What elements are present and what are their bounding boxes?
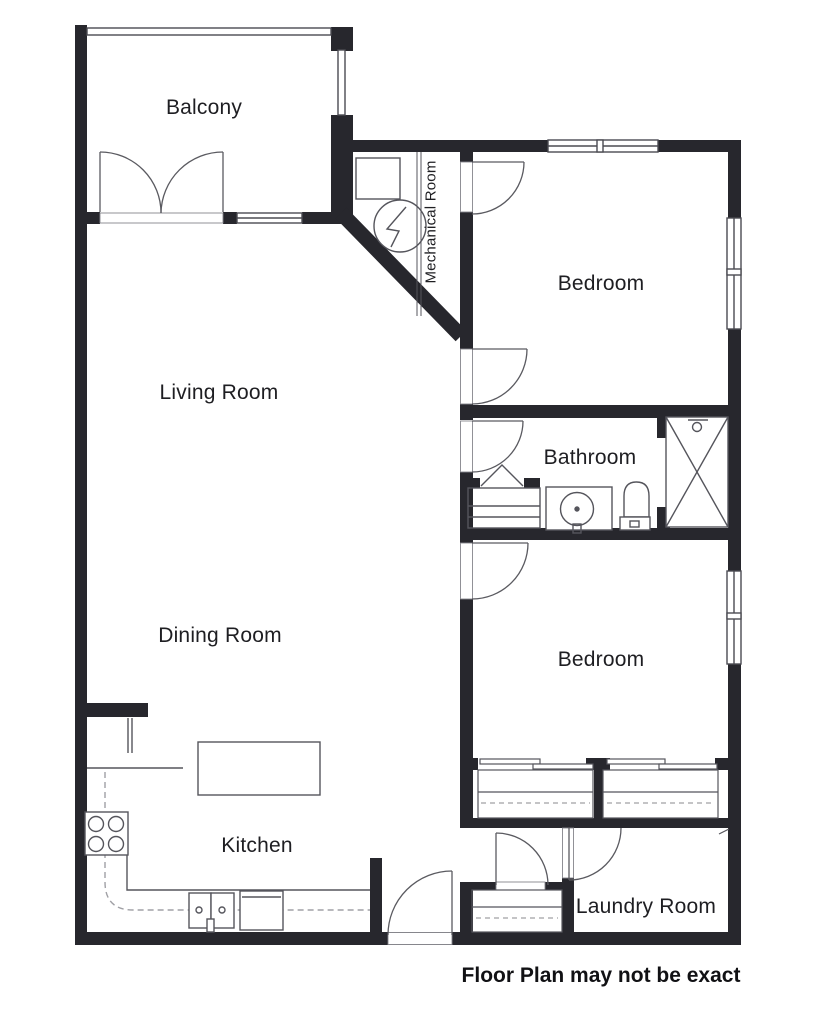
room-label-living-room: Living Room [160,381,279,405]
wall-segment [460,152,473,162]
wall-segment [75,703,148,717]
wall-segment [524,478,540,488]
french-doors-icon [100,152,223,213]
corner-tick [719,829,729,834]
coat-closet [472,890,562,932]
door-swing-icon [388,871,452,935]
wall-segment [545,882,574,890]
water-heater-icon [356,158,400,199]
wall-segment [331,27,353,51]
room-label-bedroom-1: Bedroom [558,272,645,296]
wall-segment [460,212,473,349]
dishwasher-icon [240,891,283,930]
wall-segment [460,404,473,420]
wall-segment [460,818,740,828]
stove-icon [85,812,128,855]
kitchen-sink-icon [189,893,234,932]
wall-segment [658,140,741,152]
counter-edge [127,855,370,890]
door-swing-icon [472,349,527,404]
kitchen-fixtures [85,718,370,932]
room-label-dining-room: Dining Room [158,624,282,648]
wall-segment [460,882,496,890]
wall-segment [75,212,100,224]
wall-segment [472,405,740,418]
door-swing-icon [472,421,523,472]
bifold-door-icon [481,465,523,486]
wall-segment [353,140,548,152]
wall-segment [594,770,603,818]
shower-icon [666,417,728,527]
linen-closet [468,465,540,528]
window-icon [727,218,741,329]
room-label-bathroom: Bathroom [544,446,637,470]
wall-segment [370,858,382,934]
wall-segment [460,758,478,770]
window-icon [727,571,741,664]
room-label-kitchen: Kitchen [221,834,292,858]
wall-segment [223,212,237,224]
kitchen-island [198,742,320,795]
wall-segment [715,758,741,770]
wall-segment [331,115,353,216]
room-label-bedroom-2: Bedroom [558,648,645,672]
toilet-icon [620,482,650,530]
door-swing-icon [496,833,548,885]
room-label-laundry-room: Laundry Room [576,895,716,919]
door-swing-icon [569,828,621,880]
wall-segment [75,25,87,945]
window-icon [548,140,658,152]
window-icon [237,213,302,223]
vanity-sink-icon [546,487,612,533]
door-swing-icon [472,543,528,599]
room-label-balcony: Balcony [166,96,242,120]
wall-segment [460,599,473,828]
disclaimer-text: Floor Plan may not be exact [462,964,741,988]
room-label-mechanical-room: Mechanical Room [423,160,440,283]
wall-segment [466,478,480,488]
electrical-panel-icon [374,200,426,252]
floor-plan: Balcony Living Room Dining Room Kitchen … [0,0,819,1024]
bathroom-fixtures [468,417,728,533]
floor-plan-drawing [0,0,819,1024]
door-swing-icon [472,162,524,214]
